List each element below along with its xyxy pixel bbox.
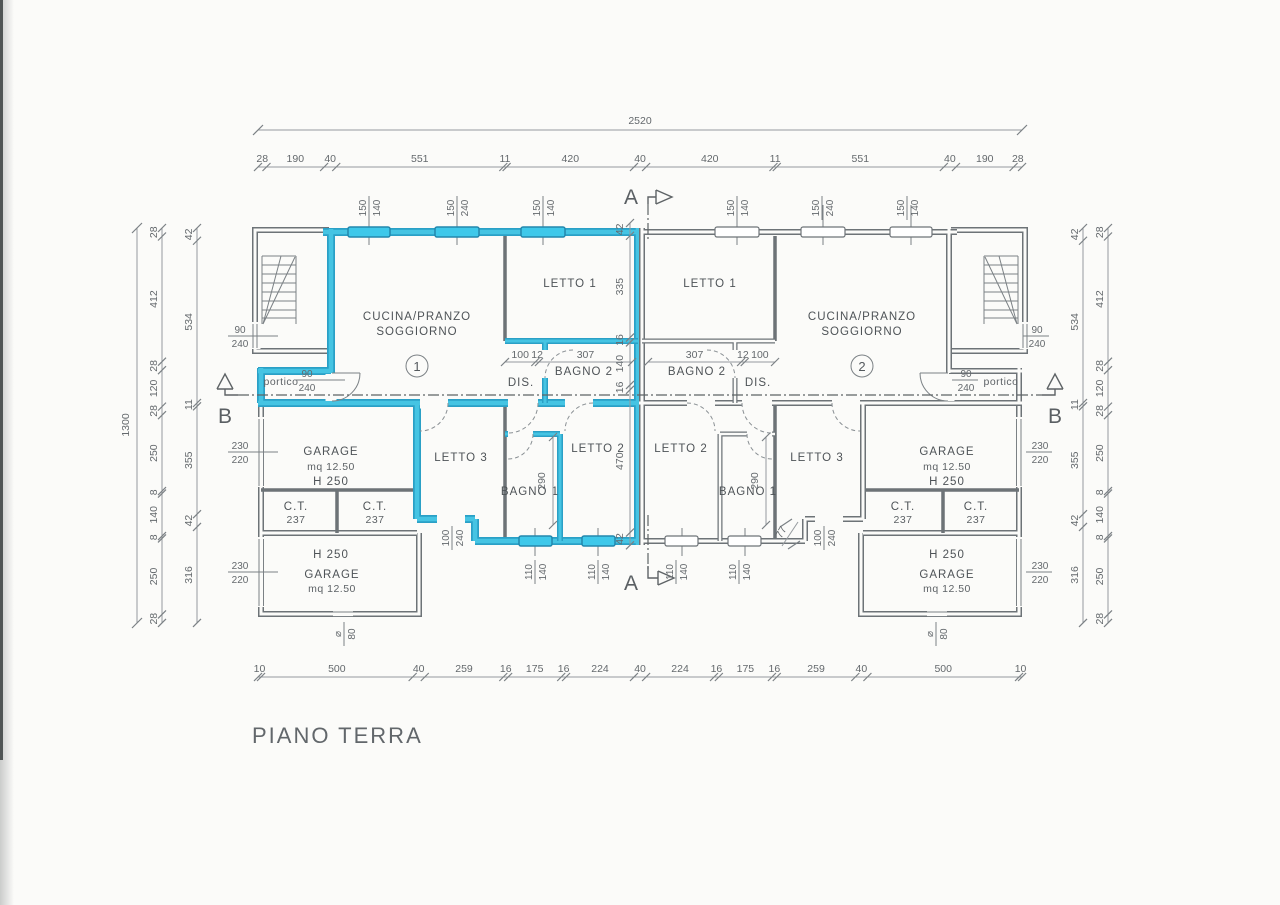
dim-label: 42 (183, 515, 195, 527)
dim-label: 175 (737, 663, 755, 675)
dim-label: 16 (614, 381, 626, 393)
opening-size-label: 110140 (587, 560, 612, 584)
u1-ct2-height: 237 (365, 514, 384, 526)
opening-size-label: 150140 (726, 196, 751, 220)
dim-label: 140 (1094, 506, 1106, 524)
dim-label: 16 (769, 663, 781, 675)
opening-size-label: 100240 (441, 526, 466, 550)
u1-dis-label: DIS. (508, 377, 534, 389)
opening-size-text: 150 (896, 199, 907, 216)
dim-label: 11 (500, 153, 511, 165)
u2-cucina-label-1: CUCINA/PRANZO (808, 311, 916, 323)
opening-size-label: ⌀80 (333, 622, 358, 646)
opening-size-label: ⌀80 (925, 622, 950, 646)
dim-label: 28 (148, 613, 160, 625)
dim-label: 307 (577, 349, 595, 361)
dim-label: 42 (614, 223, 626, 235)
floor-plan-drawing: A A B B 2520 1300 CUCINA/PRANZO SOGGIORN… (0, 0, 1280, 905)
dim-label: 500 (934, 663, 952, 675)
u1-garage-top-name: GARAGE (303, 446, 358, 458)
dim-label: 40 (634, 663, 646, 675)
opening-size-text: 140 (372, 199, 383, 216)
section-label-b-left: B (218, 405, 232, 428)
dim-label: 259 (455, 663, 473, 675)
dim-label: 40 (634, 153, 646, 165)
opening-size-label: 150240 (446, 196, 471, 220)
dim-label: 316 (1069, 566, 1081, 584)
dim-label: 120 (1094, 379, 1106, 397)
opening-size-text: 240 (827, 529, 838, 546)
opening-size-text: 110 (587, 564, 598, 580)
dim-label: 8 (148, 534, 160, 540)
u2-letto1-label: LETTO 1 (683, 278, 736, 290)
dim-label: 28 (1094, 613, 1106, 625)
opening-size-text: 150 (358, 199, 369, 216)
dim-label: 355 (183, 451, 195, 469)
dim-label: 28 (148, 405, 160, 417)
dim-label: 28 (148, 360, 160, 372)
section-arrow-a-top (648, 190, 672, 204)
dim-label: 250 (1094, 444, 1106, 462)
opening-size-label: 150140 (896, 196, 921, 220)
unit2-walls (639, 205, 1027, 617)
opening-size-text: 90 (1031, 325, 1043, 336)
opening-size-text: 80 (939, 628, 950, 640)
dim-label: 316 (183, 566, 195, 584)
opening-size-text: 240 (299, 383, 316, 394)
u2-ct1-height: 237 (893, 514, 912, 526)
u2-garage-bottom-area: mq 12.50 (923, 583, 971, 595)
section-arrow-b-left (217, 374, 238, 395)
scanned-floor-plan-page: A A B B 2520 1300 CUCINA/PRANZO SOGGIORN… (0, 0, 1280, 905)
unit2-windows (665, 227, 932, 546)
dim-label: 224 (591, 663, 609, 675)
dim-label: 42 (1069, 228, 1081, 240)
dim-label: 190 (976, 153, 994, 165)
dim-label: 40 (324, 153, 336, 165)
opening-size-text: 150 (532, 199, 543, 216)
dim-label: 412 (1094, 290, 1106, 308)
opening-size-text: 90 (301, 369, 313, 380)
section-arrow-b-right (1042, 374, 1063, 395)
u1-bagno1-label: BAGNO 1 (501, 486, 559, 498)
dim-label: 120 (148, 379, 160, 397)
opening-size-text: 100 (813, 529, 824, 546)
u1-cucina-label-2: SOGGIORNO (376, 326, 457, 338)
dim-total-top: 2520 (628, 115, 652, 127)
window-leader-lines (369, 205, 598, 556)
dim-label: 16 (500, 663, 512, 675)
opening-size-text: 140 (679, 563, 690, 580)
dim-label: 40 (413, 663, 425, 675)
opening-size-text: 140 (742, 563, 753, 580)
opening-size-text: 140 (538, 563, 549, 580)
dim-label: 10 (1015, 663, 1027, 675)
u1-bagno1-height-dim: 290 (536, 472, 548, 490)
opening-size-label: 150140 (358, 196, 383, 220)
opening-size-label: 100240 (813, 526, 838, 550)
u2-bagno2-label: BAGNO 2 (668, 366, 726, 378)
dim-label: 10 (254, 663, 266, 675)
dim-label: 40 (856, 663, 868, 675)
opening-size-label: 230220 (1026, 561, 1052, 586)
u1-ct1-height: 237 (286, 514, 305, 526)
section-label-b-right: B (1048, 405, 1062, 428)
unit1-labels: CUCINA/PRANZO SOGGIORNO 1 LETTO 1 BAGNO … (263, 278, 624, 595)
opening-size-text: 240 (232, 339, 249, 350)
opening-size-text: 150 (446, 199, 457, 216)
dim-label: 259 (807, 663, 825, 675)
scan-edge-border (0, 0, 3, 760)
dim-label: 12 (531, 349, 543, 361)
opening-size-text: 90 (234, 325, 246, 336)
dim-label: 8 (1094, 534, 1106, 540)
u1-ct2-name: C.T. (363, 501, 387, 513)
opening-size-text: 110 (524, 564, 535, 580)
dim-label: 16 (558, 663, 570, 675)
dim-label: 412 (148, 290, 160, 308)
dim-label: 11 (183, 399, 195, 410)
opening-size-text: 240 (455, 529, 466, 546)
unit1-walls (253, 205, 641, 617)
opening-size-text: 240 (1029, 339, 1046, 350)
dim-label: 40 (944, 153, 956, 165)
opening-size-text: ⌀ (333, 631, 344, 637)
dim-label: 16 (614, 334, 626, 346)
opening-size-text: 150 (811, 199, 822, 216)
u2-garage-top-name: GARAGE (919, 446, 974, 458)
opening-size-text: 140 (740, 199, 751, 216)
opening-size-text: 230 (1032, 561, 1049, 572)
u2-garage-top-area: mq 12.50 (923, 461, 971, 473)
opening-size-label: 150140 (532, 196, 557, 220)
u2-ct1-name: C.T. (891, 501, 915, 513)
u2-number: 2 (858, 359, 865, 374)
u2-garage-bottom-name: GARAGE (919, 569, 974, 581)
dim-label: 42 (1069, 515, 1081, 527)
u2-cucina-label-2: SOGGIORNO (821, 326, 902, 338)
opening-size-text: ⌀ (925, 631, 936, 637)
opening-size-text: 220 (1032, 455, 1049, 466)
u1-bagno2-label: BAGNO 2 (555, 366, 613, 378)
dim-label: 307 (686, 349, 704, 361)
opening-size-text: 220 (1032, 575, 1049, 586)
dim-label: 100 (511, 349, 529, 361)
u2-garage-top-height: H 250 (929, 476, 965, 488)
dim-label: 28 (1094, 405, 1106, 417)
opening-size-text: 100 (441, 529, 452, 546)
opening-size-label: 110140 (665, 560, 690, 584)
u1-number: 1 (413, 359, 420, 374)
u2-bagno1-label: BAGNO 1 (719, 486, 777, 498)
dim-label: 534 (183, 313, 195, 331)
u1-garage-bottom-area: mq 12.50 (308, 583, 356, 595)
unit1-staircase (262, 256, 296, 324)
opening-size-label: 110140 (728, 560, 753, 584)
u1-garage-bottom-name: GARAGE (304, 569, 359, 581)
dim-label: 28 (1012, 153, 1024, 165)
opening-size-text: 90 (960, 369, 972, 380)
dim-label: 420 (701, 153, 719, 165)
dim-label: 470 (614, 452, 626, 470)
drawing-title: PIANO TERRA (252, 723, 423, 748)
u1-ct1-name: C.T. (284, 501, 308, 513)
dim-label: 250 (148, 444, 160, 462)
opening-size-text: 80 (347, 628, 358, 640)
opening-size-text: 140 (910, 199, 921, 216)
u2-dis-label: DIS. (745, 377, 771, 389)
dim-label: 8 (1094, 489, 1106, 495)
dim-label: 8 (148, 489, 160, 495)
u1-letto3-label: LETTO 3 (434, 452, 487, 464)
u2-ct2-name: C.T. (964, 501, 988, 513)
opening-size-text: 240 (825, 199, 836, 216)
dim-label: 28 (1094, 226, 1106, 238)
dim-label: 500 (328, 663, 346, 675)
u1-garage-bottom-height: H 250 (313, 549, 349, 561)
opening-size-text: 230 (1032, 441, 1049, 452)
dim-label: 11 (1069, 399, 1081, 410)
dim-label: 140 (148, 506, 160, 524)
opening-size-text: 220 (232, 455, 249, 466)
section-label-a-bottom: A (624, 572, 638, 595)
dim-label: 250 (1094, 568, 1106, 586)
opening-size-text: 230 (232, 441, 249, 452)
opening-size-text: 110 (728, 564, 739, 580)
dim-label: 551 (411, 153, 429, 165)
u1-garage-top-area: mq 12.50 (307, 461, 355, 473)
section-label-a-top: A (624, 186, 638, 209)
dim-label: 175 (526, 663, 544, 675)
opening-size-label: 230220 (1026, 441, 1052, 466)
opening-size-text: 230 (232, 561, 249, 572)
dim-label: 12 (737, 349, 749, 361)
dim-label: 250 (148, 568, 160, 586)
opening-size-text: 140 (546, 199, 557, 216)
dim-label: 11 (770, 153, 781, 165)
dim-label: 28 (1094, 360, 1106, 372)
dim-label: 28 (148, 226, 160, 238)
opening-size-label: 230220 (228, 441, 278, 466)
dim-label: 335 (614, 278, 626, 296)
opening-size-text: 240 (958, 383, 975, 394)
u2-letto2-label: LETTO 2 (654, 443, 707, 455)
opening-size-label: 110140 (524, 560, 549, 584)
dim-label: 42 (183, 228, 195, 240)
opening-size-text: 140 (601, 563, 612, 580)
u1-portico-label: portico (263, 376, 298, 388)
dim-label: 28 (256, 153, 268, 165)
dim-label: 355 (1069, 451, 1081, 469)
dim-label: 190 (287, 153, 305, 165)
opening-size-text: 220 (232, 575, 249, 586)
opening-size-text: 240 (460, 199, 471, 216)
unit2-labels: CUCINA/PRANZO SOGGIORNO 2 LETTO 1 BAGNO … (654, 278, 1018, 595)
dim-label: 420 (562, 153, 580, 165)
u1-garage-top-height: H 250 (313, 476, 349, 488)
u2-bagno1-height-dim: 290 (749, 472, 761, 490)
dim-label: 224 (671, 663, 689, 675)
dim-label: 16 (711, 663, 723, 675)
dim-label: 534 (1069, 313, 1081, 331)
dim-total-left: 1300 (120, 413, 132, 437)
unit1-windows (348, 227, 615, 546)
u2-portico-label: portico (983, 376, 1018, 388)
u2-letto3-label: LETTO 3 (790, 452, 843, 464)
opening-size-text: 110 (665, 564, 676, 580)
u1-cucina-label-1: CUCINA/PRANZO (363, 311, 471, 323)
opening-size-text: 150 (726, 199, 737, 216)
dim-label: 551 (852, 153, 870, 165)
u1-letto1-label: LETTO 1 (543, 278, 596, 290)
u2-garage-bottom-height: H 250 (929, 549, 965, 561)
u2-ct2-height: 237 (966, 514, 985, 526)
dim-label: 42 (614, 533, 626, 545)
dim-label: 100 (751, 349, 769, 361)
dim-label: 140 (614, 355, 626, 373)
unit2-staircase (984, 256, 1018, 324)
opening-size-label: 230220 (228, 561, 278, 586)
